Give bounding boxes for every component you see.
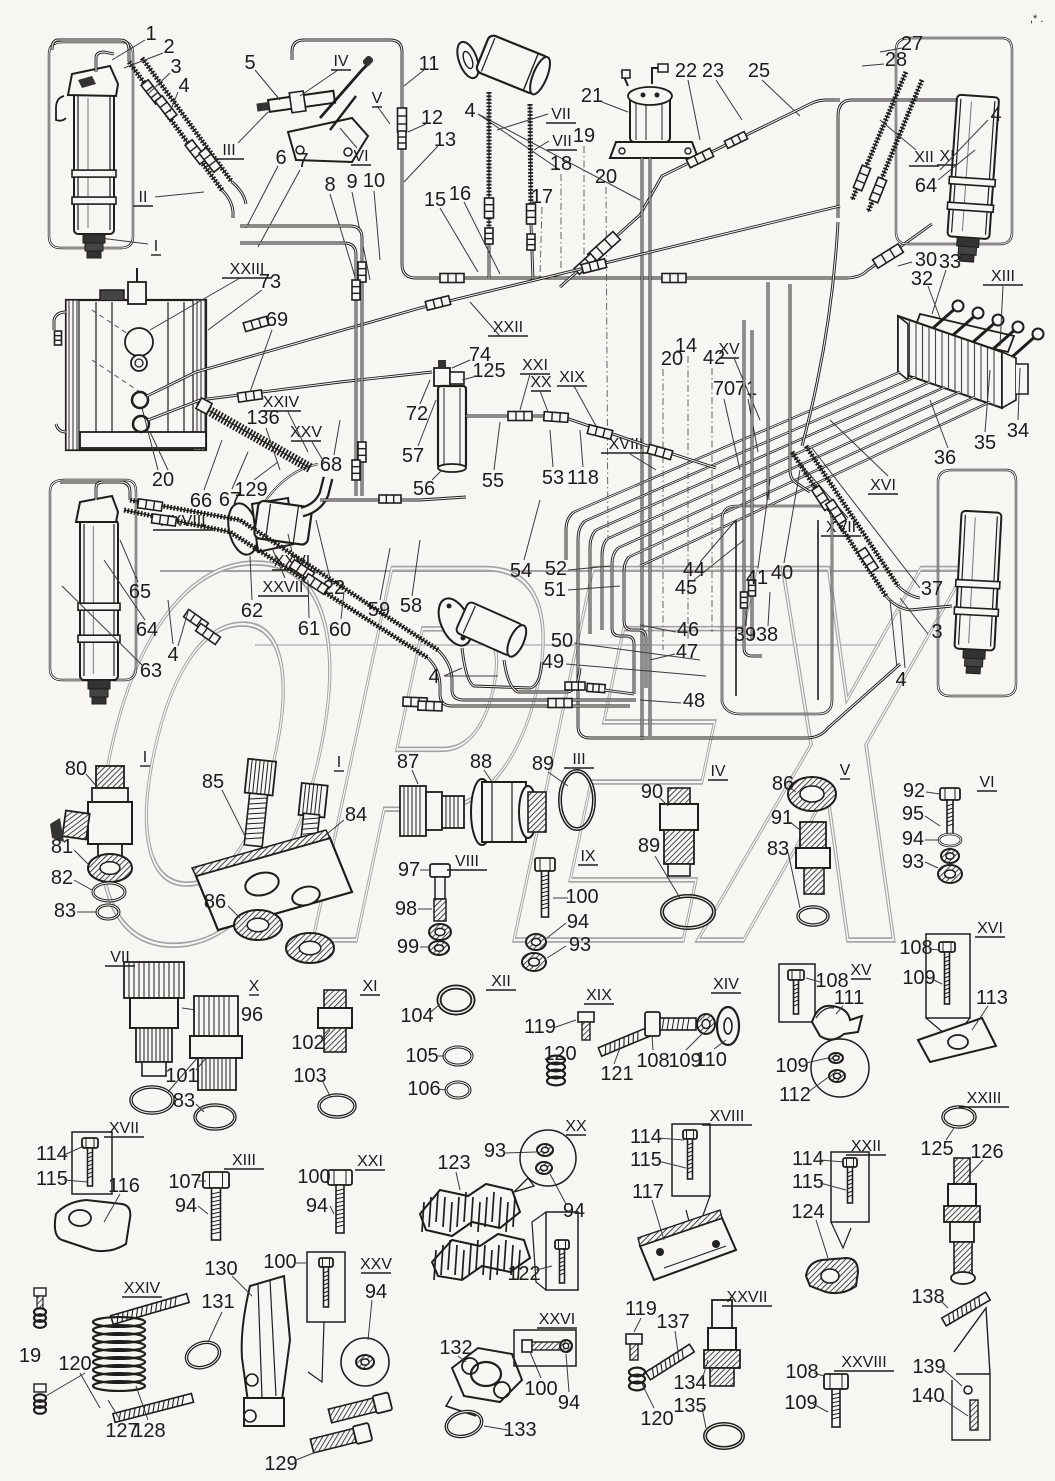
svg-text:8: 8 [324, 174, 335, 196]
svg-text:I: I [154, 238, 158, 255]
svg-text:99: 99 [397, 936, 419, 958]
svg-text:88: 88 [470, 751, 492, 773]
svg-text:4: 4 [990, 104, 1001, 126]
svg-text:86: 86 [204, 891, 226, 913]
svg-text:46: 46 [677, 619, 699, 641]
svg-text:35: 35 [974, 432, 996, 454]
svg-text:101: 101 [165, 1065, 198, 1087]
svg-text:4: 4 [428, 666, 439, 688]
svg-text:112: 112 [779, 1084, 811, 1106]
svg-text:125: 125 [472, 360, 505, 382]
svg-text:I: I [143, 749, 147, 766]
svg-text:52: 52 [545, 558, 567, 580]
svg-text:66: 66 [190, 490, 212, 512]
svg-text:41: 41 [746, 567, 768, 589]
svg-text:V: V [372, 90, 383, 107]
svg-text:94: 94 [558, 1392, 580, 1414]
svg-text:59: 59 [368, 599, 390, 621]
svg-text:39: 39 [734, 624, 756, 646]
svg-text:53: 53 [542, 467, 564, 489]
svg-text:119: 119 [625, 1298, 657, 1320]
svg-text:93: 93 [569, 934, 591, 956]
svg-text:VI: VI [353, 148, 368, 165]
svg-text:94: 94 [563, 1200, 585, 1222]
svg-text:57: 57 [402, 445, 424, 467]
svg-text:93: 93 [484, 1140, 506, 1162]
svg-text:49: 49 [542, 651, 564, 673]
svg-text:20: 20 [595, 166, 617, 188]
svg-text:139: 139 [912, 1356, 945, 1378]
svg-text:60: 60 [329, 619, 351, 641]
svg-text:XXIII: XXIII [967, 1090, 1002, 1107]
svg-text:I: I [337, 754, 341, 771]
svg-text:92: 92 [903, 780, 925, 802]
svg-text:,* .: ,* . [1030, 13, 1043, 25]
svg-text:3: 3 [931, 621, 942, 643]
svg-text:140: 140 [911, 1385, 944, 1407]
svg-text:122: 122 [507, 1263, 540, 1285]
svg-text:IV: IV [710, 763, 725, 780]
svg-text:23: 23 [702, 60, 724, 82]
svg-text:37: 37 [921, 578, 943, 600]
svg-text:XII: XII [914, 149, 934, 166]
svg-text:XXVI: XXVI [539, 1311, 575, 1328]
svg-text:110: 110 [695, 1049, 727, 1071]
svg-text:34: 34 [1007, 420, 1029, 442]
svg-text:129: 129 [264, 1453, 297, 1475]
svg-text:120: 120 [640, 1408, 673, 1430]
svg-text:XI: XI [362, 978, 377, 995]
svg-text:106: 106 [407, 1078, 440, 1100]
svg-text:126: 126 [970, 1141, 1003, 1163]
svg-text:21: 21 [581, 85, 603, 107]
svg-text:71: 71 [735, 378, 757, 400]
svg-text:22: 22 [675, 60, 697, 82]
svg-text:96: 96 [241, 1004, 263, 1026]
svg-text:97: 97 [398, 859, 420, 881]
svg-text:105: 105 [405, 1045, 438, 1067]
svg-text:XXVII: XXVII [727, 1289, 768, 1306]
svg-text:13: 13 [434, 129, 456, 151]
svg-text:109: 109 [784, 1392, 817, 1414]
svg-text:VI: VI [979, 774, 994, 791]
svg-text:III: III [222, 142, 235, 159]
svg-text:4: 4 [167, 644, 178, 666]
svg-text:83: 83 [767, 838, 789, 860]
svg-text:12: 12 [421, 107, 443, 129]
svg-text:XV: XV [850, 962, 872, 979]
svg-text:32: 32 [911, 268, 933, 290]
svg-text:XIX: XIX [586, 987, 612, 1004]
svg-text:VII: VII [110, 949, 130, 966]
svg-text:54: 54 [510, 560, 532, 582]
svg-text:IX: IX [580, 848, 595, 865]
svg-text:33: 33 [939, 251, 961, 273]
svg-text:123: 123 [437, 1152, 470, 1174]
svg-text:XXI: XXI [357, 1153, 383, 1170]
svg-text:132: 132 [439, 1337, 472, 1359]
svg-text:102: 102 [291, 1032, 324, 1054]
svg-text:XIII: XIII [232, 1152, 256, 1169]
svg-text:51: 51 [544, 579, 566, 601]
svg-text:114: 114 [36, 1143, 68, 1165]
svg-text:40: 40 [771, 562, 793, 584]
svg-text:56: 56 [413, 478, 435, 500]
svg-text:XXV: XXV [360, 1256, 392, 1273]
svg-text:XVII: XVII [109, 1120, 139, 1137]
svg-text:109: 109 [902, 967, 935, 989]
svg-text:121: 121 [600, 1063, 633, 1085]
svg-text:XVI: XVI [977, 920, 1003, 937]
svg-text:65: 65 [129, 581, 151, 603]
svg-text:124: 124 [791, 1201, 824, 1223]
svg-text:4: 4 [178, 75, 189, 97]
svg-text:138: 138 [911, 1286, 944, 1308]
svg-text:94: 94 [902, 828, 924, 850]
svg-text:38: 38 [756, 624, 778, 646]
svg-text:64: 64 [915, 175, 937, 197]
svg-text:129: 129 [234, 479, 267, 501]
svg-text:VII: VII [551, 106, 571, 123]
svg-text:50: 50 [551, 630, 573, 652]
svg-text:135: 135 [673, 1395, 706, 1417]
svg-text:17: 17 [531, 186, 553, 208]
svg-text:108: 108 [899, 937, 932, 959]
svg-text:82: 82 [51, 867, 73, 889]
svg-text:108: 108 [785, 1361, 818, 1383]
svg-text:115: 115 [36, 1168, 68, 1190]
svg-text:XX: XX [565, 1118, 587, 1135]
svg-text:107: 107 [168, 1171, 201, 1193]
svg-text:94: 94 [175, 1195, 197, 1217]
svg-text:134: 134 [673, 1372, 706, 1394]
svg-text:85: 85 [202, 771, 224, 793]
svg-text:XV: XV [718, 341, 740, 358]
svg-text:137: 137 [656, 1311, 689, 1333]
svg-text:15: 15 [424, 189, 446, 211]
svg-text:70: 70 [713, 378, 735, 400]
svg-text:120: 120 [58, 1353, 91, 1375]
svg-text:100: 100 [297, 1166, 330, 1188]
svg-text:III: III [572, 751, 585, 768]
svg-text:55: 55 [482, 470, 504, 492]
svg-text:64: 64 [136, 619, 158, 641]
svg-text:91: 91 [771, 807, 793, 829]
svg-text:95: 95 [902, 803, 924, 825]
svg-text:XIII: XIII [991, 268, 1015, 285]
svg-text:XX: XX [530, 374, 552, 391]
svg-text:XXI: XXI [522, 357, 548, 374]
svg-text:II: II [139, 189, 148, 206]
svg-text:86: 86 [772, 773, 794, 795]
svg-text:131: 131 [201, 1291, 234, 1313]
svg-text:128: 128 [132, 1420, 165, 1442]
svg-text:6: 6 [275, 147, 286, 169]
svg-text:116: 116 [108, 1175, 140, 1197]
svg-text:XXIV: XXIV [124, 1280, 161, 1297]
svg-text:104: 104 [400, 1005, 433, 1027]
svg-text:84: 84 [345, 804, 367, 826]
svg-text:93: 93 [902, 851, 924, 873]
svg-text:94: 94 [567, 911, 589, 933]
svg-text:4: 4 [464, 100, 475, 122]
svg-text:63: 63 [140, 660, 162, 682]
svg-text:103: 103 [293, 1065, 326, 1087]
svg-text:87: 87 [397, 751, 419, 773]
svg-text:89: 89 [532, 753, 554, 775]
svg-text:61: 61 [298, 618, 320, 640]
svg-text:7: 7 [297, 150, 308, 172]
svg-text:XIX: XIX [559, 369, 585, 386]
svg-text:X: X [249, 978, 260, 995]
svg-text:115: 115 [792, 1171, 824, 1193]
svg-text:V: V [840, 762, 851, 779]
svg-text:19: 19 [573, 125, 595, 147]
svg-text:109: 109 [775, 1055, 808, 1077]
svg-text:114: 114 [792, 1148, 824, 1170]
svg-text:98: 98 [395, 898, 417, 920]
svg-text:5: 5 [244, 52, 255, 74]
svg-text:117: 117 [632, 1181, 664, 1203]
svg-text:125: 125 [920, 1138, 953, 1160]
svg-text:83: 83 [54, 900, 76, 922]
svg-text:18: 18 [550, 153, 572, 175]
svg-text:16: 16 [449, 183, 471, 205]
svg-text:111: 111 [834, 987, 864, 1009]
svg-text:25: 25 [748, 60, 770, 82]
svg-text:108: 108 [636, 1050, 669, 1072]
svg-text:81: 81 [51, 836, 73, 858]
svg-text:XII: XII [491, 973, 511, 990]
svg-text:118: 118 [567, 467, 599, 489]
svg-text:100: 100 [263, 1251, 296, 1273]
svg-text:10: 10 [363, 170, 385, 192]
svg-text:69: 69 [266, 309, 288, 331]
svg-text:XVIII: XVIII [710, 1108, 745, 1125]
svg-text:58: 58 [400, 595, 422, 617]
svg-text:73: 73 [259, 271, 281, 293]
svg-text:1: 1 [145, 23, 156, 45]
svg-text:100: 100 [524, 1378, 557, 1400]
svg-text:72: 72 [406, 403, 428, 425]
svg-text:114: 114 [630, 1126, 662, 1148]
svg-text:94: 94 [365, 1281, 387, 1303]
svg-text:80: 80 [65, 758, 87, 780]
svg-text:19: 19 [19, 1345, 41, 1367]
svg-text:133: 133 [503, 1419, 536, 1441]
svg-text:83: 83 [173, 1090, 195, 1112]
svg-text:XXII: XXII [851, 1138, 881, 1155]
svg-text:XXVIII: XXVIII [841, 1354, 886, 1371]
svg-text:62: 62 [241, 600, 263, 622]
svg-text:45: 45 [675, 577, 697, 599]
svg-text:89: 89 [638, 835, 660, 857]
svg-text:28: 28 [885, 49, 907, 71]
svg-text:IV: IV [333, 53, 348, 70]
svg-text:14: 14 [675, 335, 697, 357]
svg-text:XVI: XVI [870, 477, 896, 494]
svg-text:100: 100 [565, 886, 598, 908]
svg-text:113: 113 [976, 987, 1008, 1009]
svg-text:120: 120 [543, 1043, 576, 1065]
svg-text:XXVII: XXVII [263, 579, 304, 596]
svg-text:94: 94 [306, 1195, 328, 1217]
svg-text:VII: VII [552, 133, 572, 150]
svg-text:68: 68 [320, 454, 342, 476]
svg-text:36: 36 [934, 447, 956, 469]
svg-text:4: 4 [895, 669, 906, 691]
svg-text:48: 48 [683, 690, 705, 712]
svg-text:9: 9 [346, 171, 357, 193]
svg-text:90: 90 [641, 781, 663, 803]
svg-text:VIII: VIII [455, 853, 479, 870]
svg-text:2: 2 [163, 36, 174, 58]
svg-text:20: 20 [152, 469, 174, 491]
svg-text:XIV: XIV [713, 976, 739, 993]
svg-text:119: 119 [524, 1016, 556, 1038]
svg-text:XXIV: XXIV [263, 394, 300, 411]
svg-text:115: 115 [630, 1149, 662, 1171]
